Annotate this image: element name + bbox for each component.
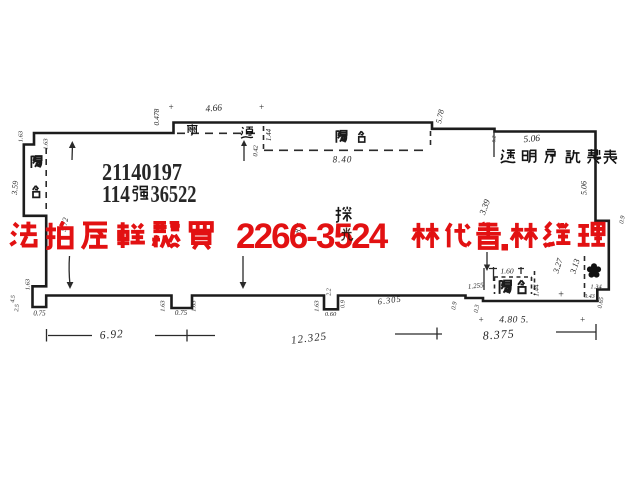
svg-text:8.40: 8.40 — [333, 155, 353, 165]
svg-text:0.43: 0.43 — [584, 293, 595, 300]
svg-text:+: + — [168, 102, 174, 112]
svg-text:4.66: 4.66 — [205, 103, 223, 114]
svg-text:1.255: 1.255 — [468, 281, 485, 291]
svg-text:+: + — [579, 315, 585, 325]
svg-text:2.2: 2.2 — [327, 288, 333, 296]
svg-text:4.5: 4.5 — [9, 295, 17, 303]
svg-text:1.44: 1.44 — [265, 128, 273, 141]
svg-text:1.63: 1.63 — [160, 300, 167, 312]
svg-text:0.60: 0.60 — [325, 311, 337, 318]
svg-text:2.5: 2.5 — [14, 304, 21, 312]
svg-text:1.63: 1.63 — [25, 278, 32, 290]
svg-text:1.44: 1.44 — [533, 284, 541, 297]
svg-text:1.63: 1.63 — [43, 138, 50, 150]
svg-text:0.2: 0.2 — [492, 135, 498, 142]
svg-text:36522: 36522 — [151, 182, 197, 208]
svg-text:1.63: 1.63 — [314, 300, 321, 312]
svg-text:1.34: 1.34 — [590, 284, 602, 291]
svg-text:+: + — [258, 102, 264, 112]
svg-text:5.06: 5.06 — [523, 134, 541, 145]
svg-text:1.60: 1.60 — [500, 267, 513, 276]
svg-text:3.59: 3.59 — [10, 180, 20, 196]
svg-text:2266-3524: 2266-3524 — [236, 217, 389, 256]
svg-text:5.06: 5.06 — [580, 181, 589, 195]
svg-text:8.375: 8.375 — [482, 326, 515, 342]
svg-text:0.9: 0.9 — [340, 299, 347, 308]
svg-text:+: + — [478, 315, 484, 325]
svg-text:0.478: 0.478 — [152, 108, 161, 125]
svg-text:+: + — [558, 290, 565, 301]
svg-text:0.42: 0.42 — [252, 144, 260, 156]
svg-text:0.75: 0.75 — [175, 309, 188, 317]
svg-text:1.63: 1.63 — [18, 130, 25, 142]
svg-text:4.80 5.: 4.80 5. — [499, 316, 529, 326]
svg-text:0.75: 0.75 — [33, 310, 46, 318]
svg-text:114: 114 — [102, 182, 130, 208]
svg-text:6.92: 6.92 — [99, 328, 124, 342]
svg-text:1.63: 1.63 — [191, 300, 198, 312]
